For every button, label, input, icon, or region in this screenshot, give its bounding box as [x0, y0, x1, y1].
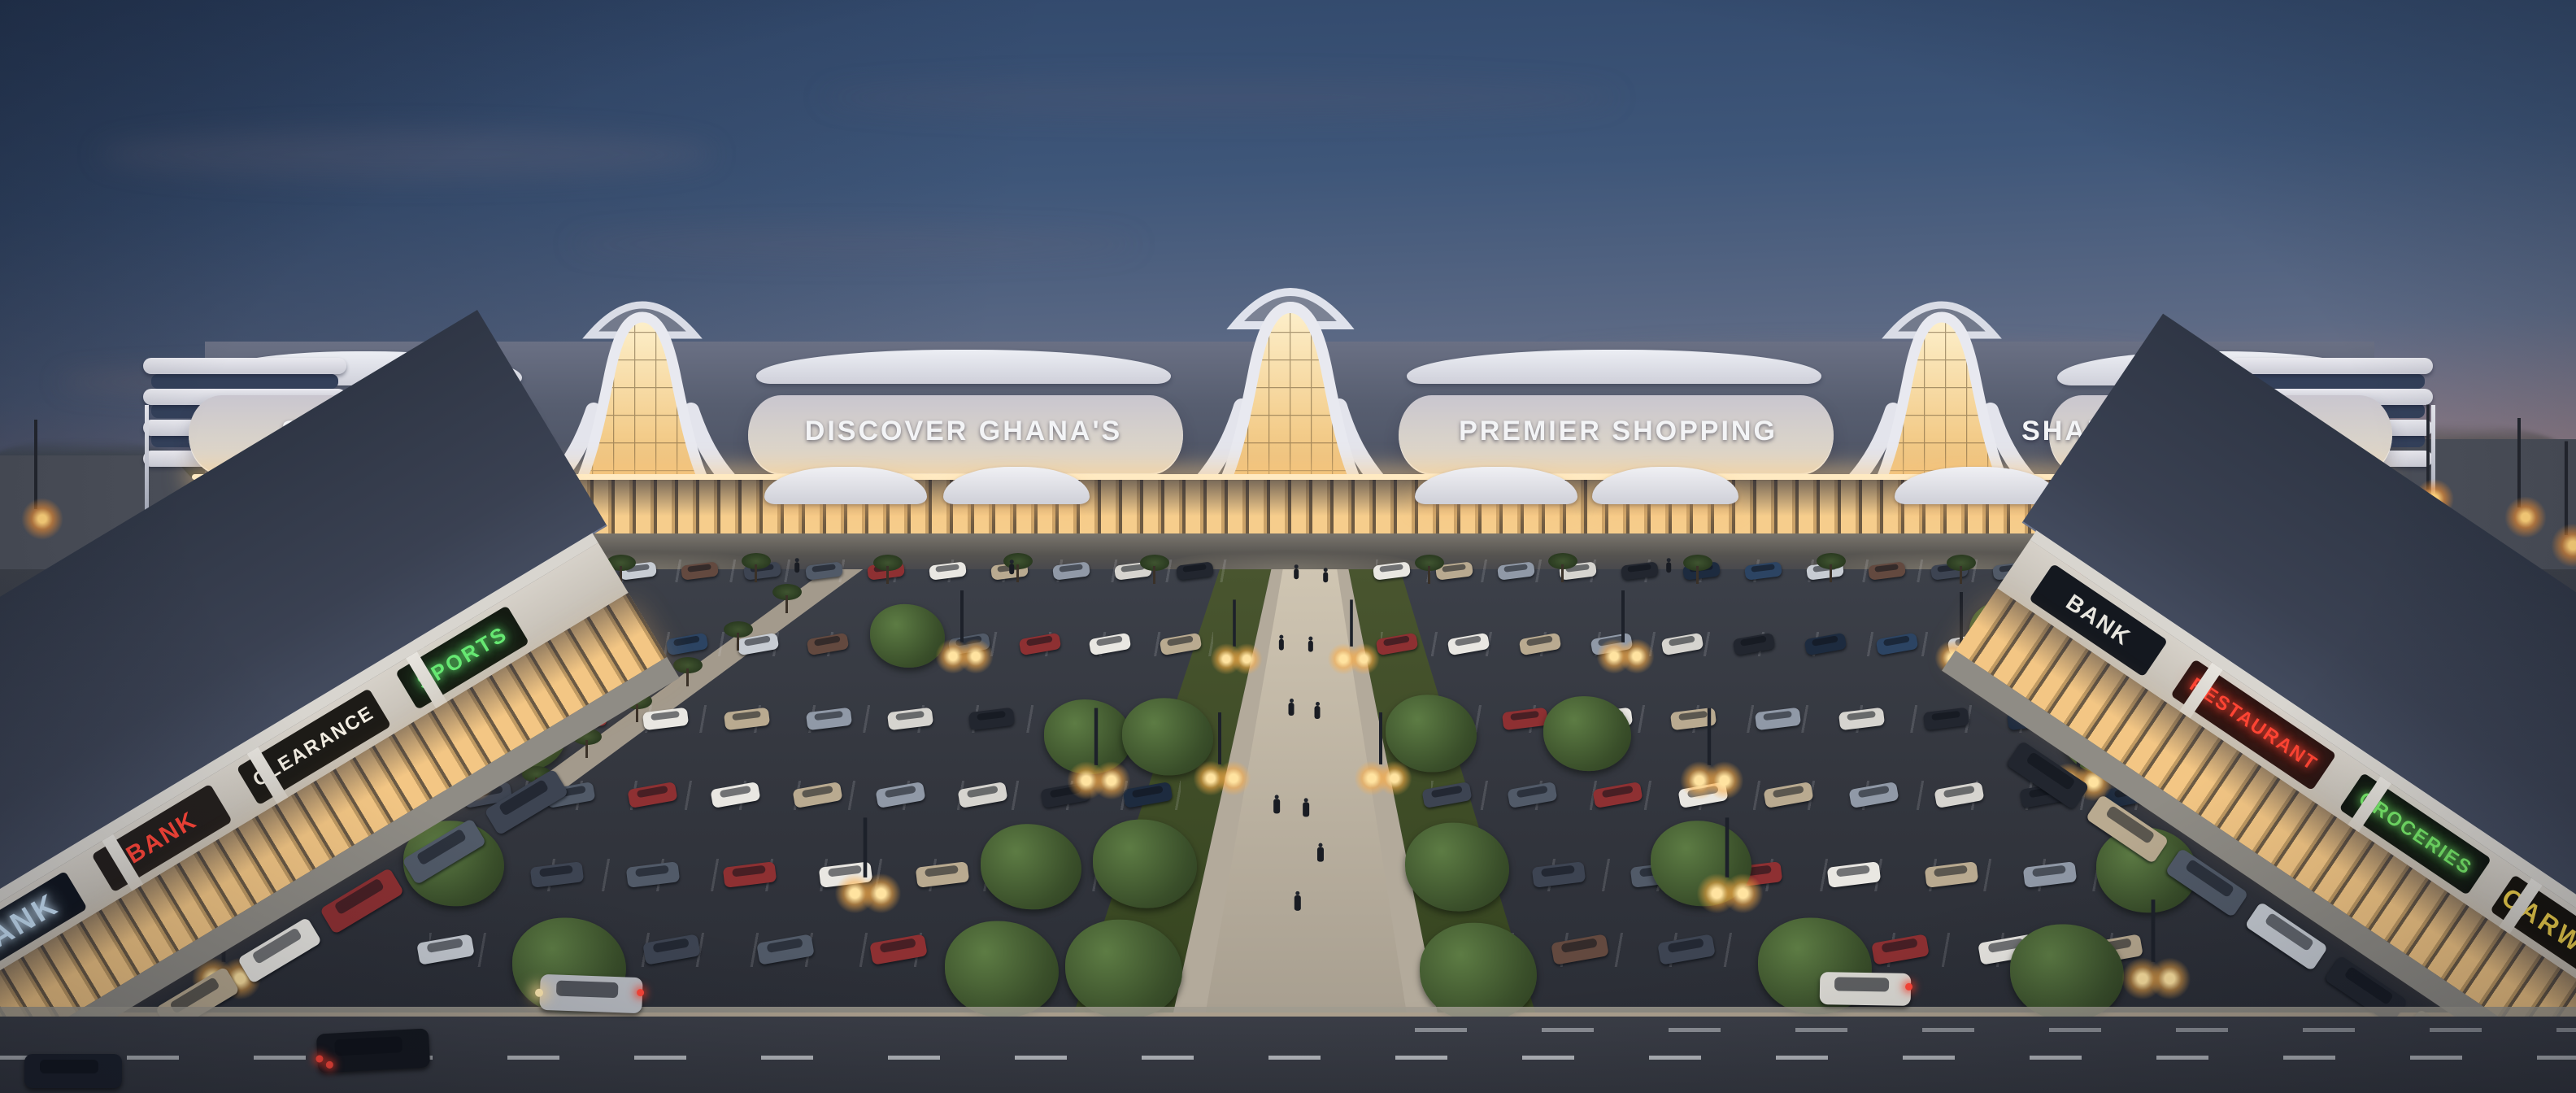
person [1308, 641, 1313, 652]
strip-parked-car [2086, 795, 2169, 864]
curb-strip [0, 1007, 2576, 1017]
person [1279, 639, 1284, 651]
palm-tree [772, 584, 802, 600]
person [1295, 895, 1301, 911]
person [1009, 564, 1014, 574]
palm-tree [742, 553, 771, 569]
palm-tree [673, 657, 703, 673]
mall-rendering-scene: SHAI HILLS MALL DISCOVER GHANA'S PREMIER… [0, 0, 2576, 1093]
tree [981, 824, 1081, 909]
palm-tree [1548, 553, 1577, 569]
road-car-black [316, 1028, 430, 1073]
strip-parked-car [484, 769, 568, 835]
strip-parked-car [320, 868, 404, 934]
road-lane-line [1415, 1028, 2576, 1032]
strip-parked-car [402, 818, 486, 885]
strip-parked-car [2244, 901, 2328, 971]
road-car-dark [24, 1054, 122, 1088]
palm-tree [1003, 553, 1033, 569]
palm-tree [1817, 553, 1846, 569]
palm-tree [724, 621, 753, 638]
person [1317, 847, 1324, 862]
strip-parked-car [237, 917, 322, 984]
person [1273, 799, 1280, 813]
person [1303, 802, 1309, 816]
tree [1065, 920, 1182, 1019]
person [1294, 568, 1299, 579]
palm-tree [1415, 555, 1444, 571]
palm-tree [1683, 555, 1712, 571]
palm-tree [1140, 555, 1169, 571]
person [1666, 562, 1671, 573]
tree [1093, 820, 1197, 908]
strip-parked-car [2006, 741, 2090, 811]
person [1323, 572, 1328, 582]
strip-parked-car [2165, 848, 2248, 918]
person [794, 562, 799, 573]
palm-tree [1947, 555, 1976, 571]
person [1289, 703, 1295, 716]
road-car-white [1820, 972, 1912, 1006]
tree [1405, 823, 1509, 912]
person [1315, 706, 1321, 719]
palm-tree [873, 555, 903, 571]
road-car-silver [539, 974, 642, 1013]
